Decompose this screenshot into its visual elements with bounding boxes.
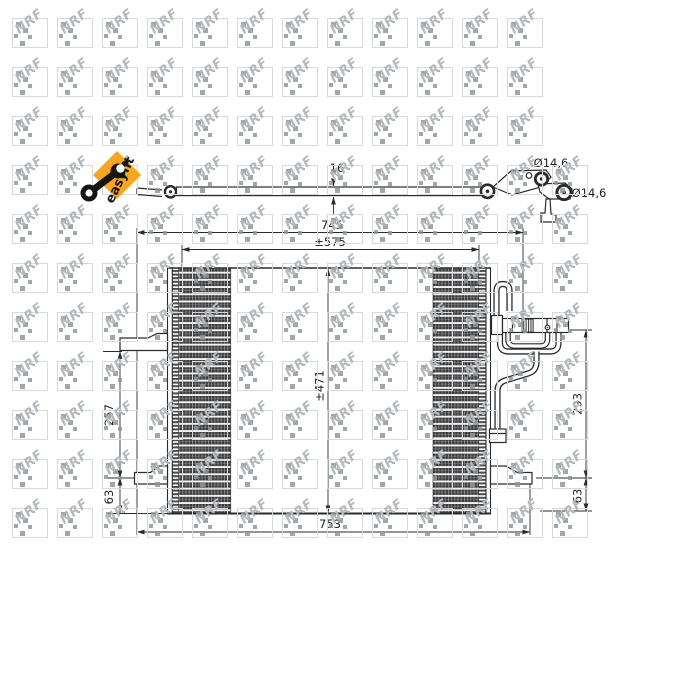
- left-grommet-icon: [165, 186, 176, 197]
- dim-core-width: ±575: [182, 235, 479, 268]
- dim-label-overall-width: 753: [319, 517, 341, 531]
- connector-block: [492, 316, 569, 335]
- dim-label-port-bottom: Ø14,6: [572, 186, 607, 200]
- dim-label-port-top: Ø14,6: [534, 156, 569, 170]
- dim-right-lower: 63: [540, 478, 592, 511]
- dim-label-left-lower: 63: [102, 490, 116, 505]
- core: [167, 268, 491, 514]
- dim-core-height: ±471: [313, 269, 329, 514]
- dim-label-core-width: ±575: [314, 235, 346, 249]
- dim-label-core-height: ±471: [313, 370, 327, 402]
- dim-label-left-upper: 257: [102, 404, 116, 426]
- dim-label-depth: 16: [330, 161, 345, 175]
- right-grommet-icon: [481, 185, 494, 198]
- condenser-front-view: [120, 268, 569, 514]
- technical-drawing: 16 Ø14,6 Ø14,6 745 ±575 ±471: [0, 0, 700, 700]
- dim-label-right-lower: 63: [571, 489, 585, 504]
- dim-label-top-width: 745: [321, 218, 343, 232]
- dim-label-right-upper: 293: [571, 393, 585, 415]
- product-image: 16 Ø14,6 Ø14,6 745 ±575 ±471: [0, 0, 700, 700]
- top-view: [137, 170, 572, 222]
- dim-left-upper: 257: [102, 352, 134, 479]
- pipes: [497, 284, 559, 429]
- easyfit-badge: easyfit: [76, 144, 146, 210]
- drier-end-block: [490, 429, 507, 443]
